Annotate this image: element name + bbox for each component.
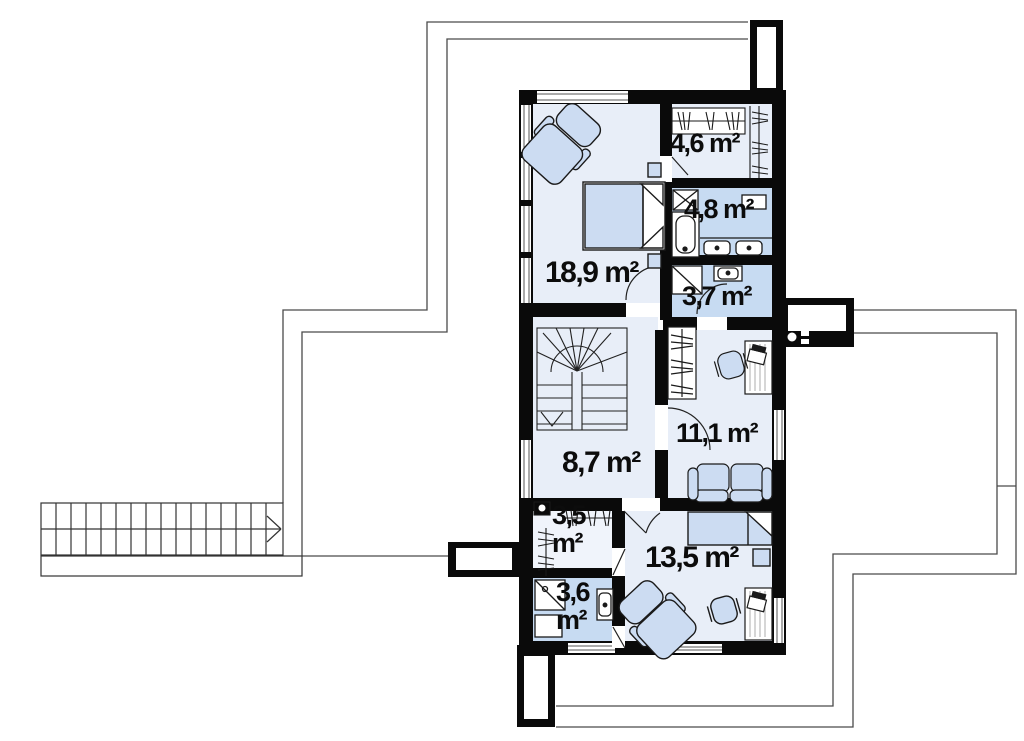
window-bottom-bath [568,643,615,653]
nightstand [753,549,770,566]
closet [668,327,696,399]
room-area-label-bedroom-second: 13,5 m² [645,543,738,574]
nightstand [648,163,661,177]
vent-fan-icon [788,333,797,342]
double-bed [583,182,665,250]
sink-icon [714,266,742,281]
window-right-bedroom2 [774,598,784,643]
room-area-label-office: 11,1 m² [676,420,757,448]
chimney-right [772,298,854,347]
floor-plan: 18,9 m² 4,6 m² 4,8 m² 3,7 m² 8,7 m² 11,1… [0,0,1024,741]
window-left-hall [521,440,531,500]
room-area-label-shower-room: 3,7 m² [682,283,751,311]
nightstand [648,254,661,268]
floor-plan-drawing [0,0,1024,741]
vent-fan-icon [534,502,550,515]
chimney-left [448,542,520,577]
chimney-bottom [517,645,555,727]
desk [745,588,772,640]
chimney-top [750,20,783,94]
room-area-label-closet: 3,5 m² [552,502,608,557]
room-area-label-bathroom-small: 3,6 m² [556,579,612,634]
exterior-stairs [41,503,302,576]
window-right-office [774,410,784,460]
room-area-label-hall: 8,7 m² [562,448,640,479]
desk [745,341,772,394]
room-area-label-bedroom-main: 18,9 m² [545,258,638,289]
window-top [537,91,628,103]
room-area-label-wardrobe: 4,6 m² [670,130,739,158]
room-area-label-bathroom-main: 4,8 m² [684,196,753,224]
window-left-bedroom [520,105,531,303]
